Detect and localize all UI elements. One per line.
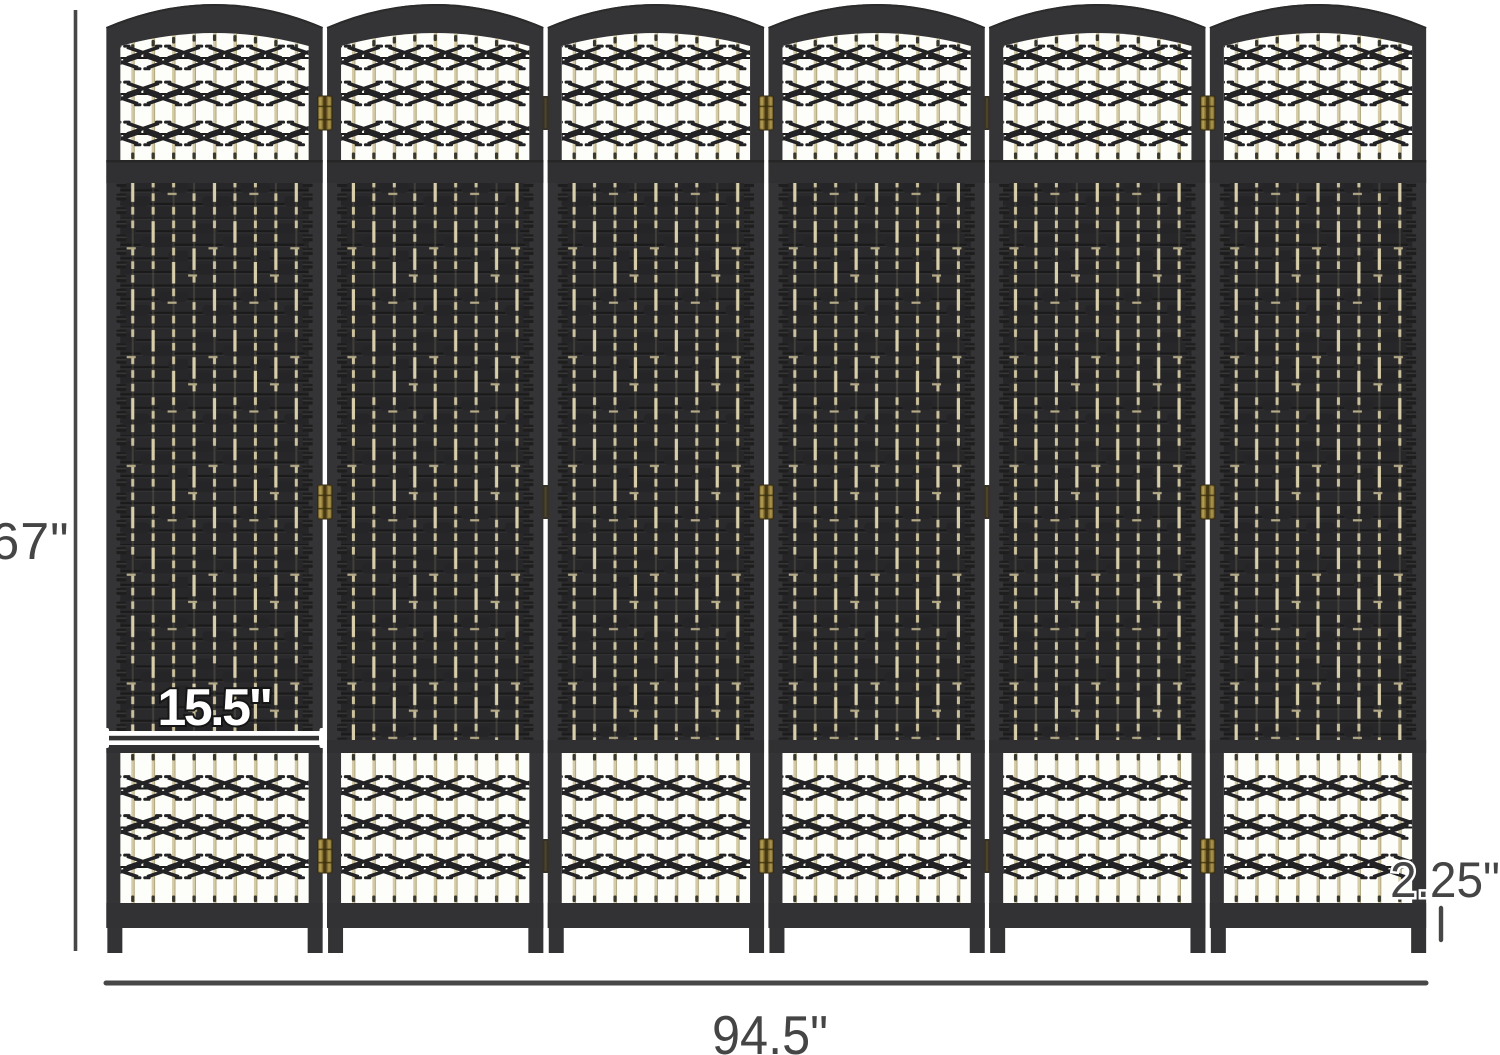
svg-text:94.5": 94.5" — [712, 1004, 828, 1055]
svg-text:67": 67" — [0, 513, 70, 571]
svg-text:15.5": 15.5" — [157, 679, 270, 737]
svg-text:2.25": 2.25" — [1390, 852, 1500, 908]
